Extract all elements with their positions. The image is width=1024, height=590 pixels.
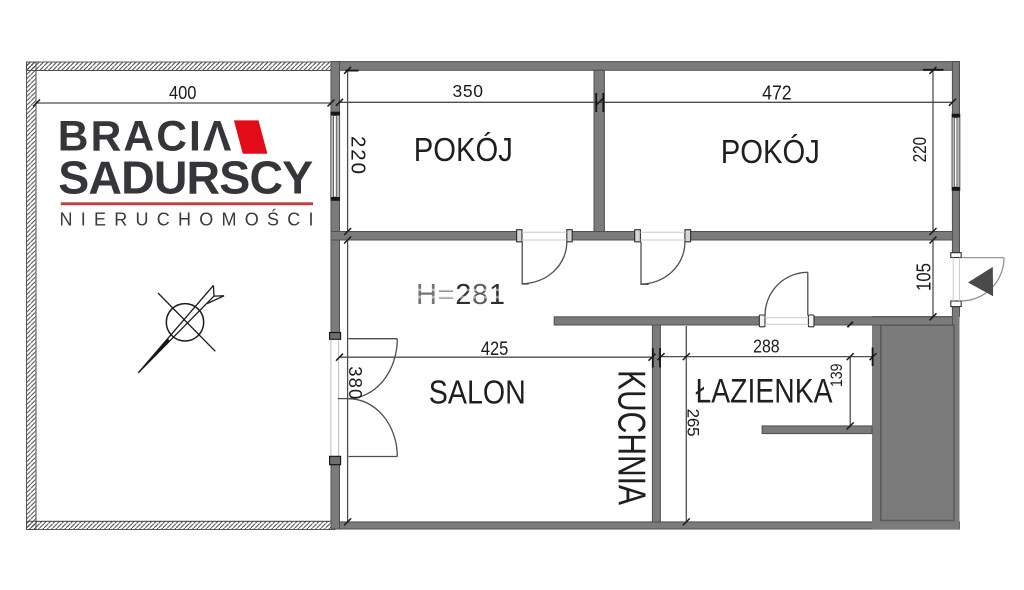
- svg-text:POKÓJ: POKÓJ: [721, 133, 820, 170]
- svg-text:POKÓJ: POKÓJ: [414, 131, 513, 168]
- svg-text:400: 400: [169, 82, 197, 103]
- svg-text:220: 220: [910, 137, 930, 163]
- svg-text:KUCHNIA: KUCHNIA: [610, 370, 653, 505]
- svg-text:NIERUCHOMOŚCI: NIERUCHOMOŚCI: [60, 208, 314, 229]
- svg-text:350: 350: [452, 81, 483, 101]
- svg-text:380: 380: [345, 366, 366, 399]
- svg-text:265: 265: [684, 409, 703, 437]
- svg-text:105: 105: [914, 263, 936, 291]
- svg-text:H=281: H=281: [416, 279, 505, 311]
- svg-text:220: 220: [346, 136, 369, 174]
- svg-text:288: 288: [753, 337, 780, 357]
- svg-text:SALON: SALON: [429, 373, 526, 410]
- svg-text:425: 425: [481, 339, 509, 360]
- svg-text:472: 472: [762, 82, 792, 104]
- svg-text:SADURSCY: SADURSCY: [58, 152, 313, 204]
- svg-text:ŁAZIENKA: ŁAZIENKA: [696, 372, 833, 410]
